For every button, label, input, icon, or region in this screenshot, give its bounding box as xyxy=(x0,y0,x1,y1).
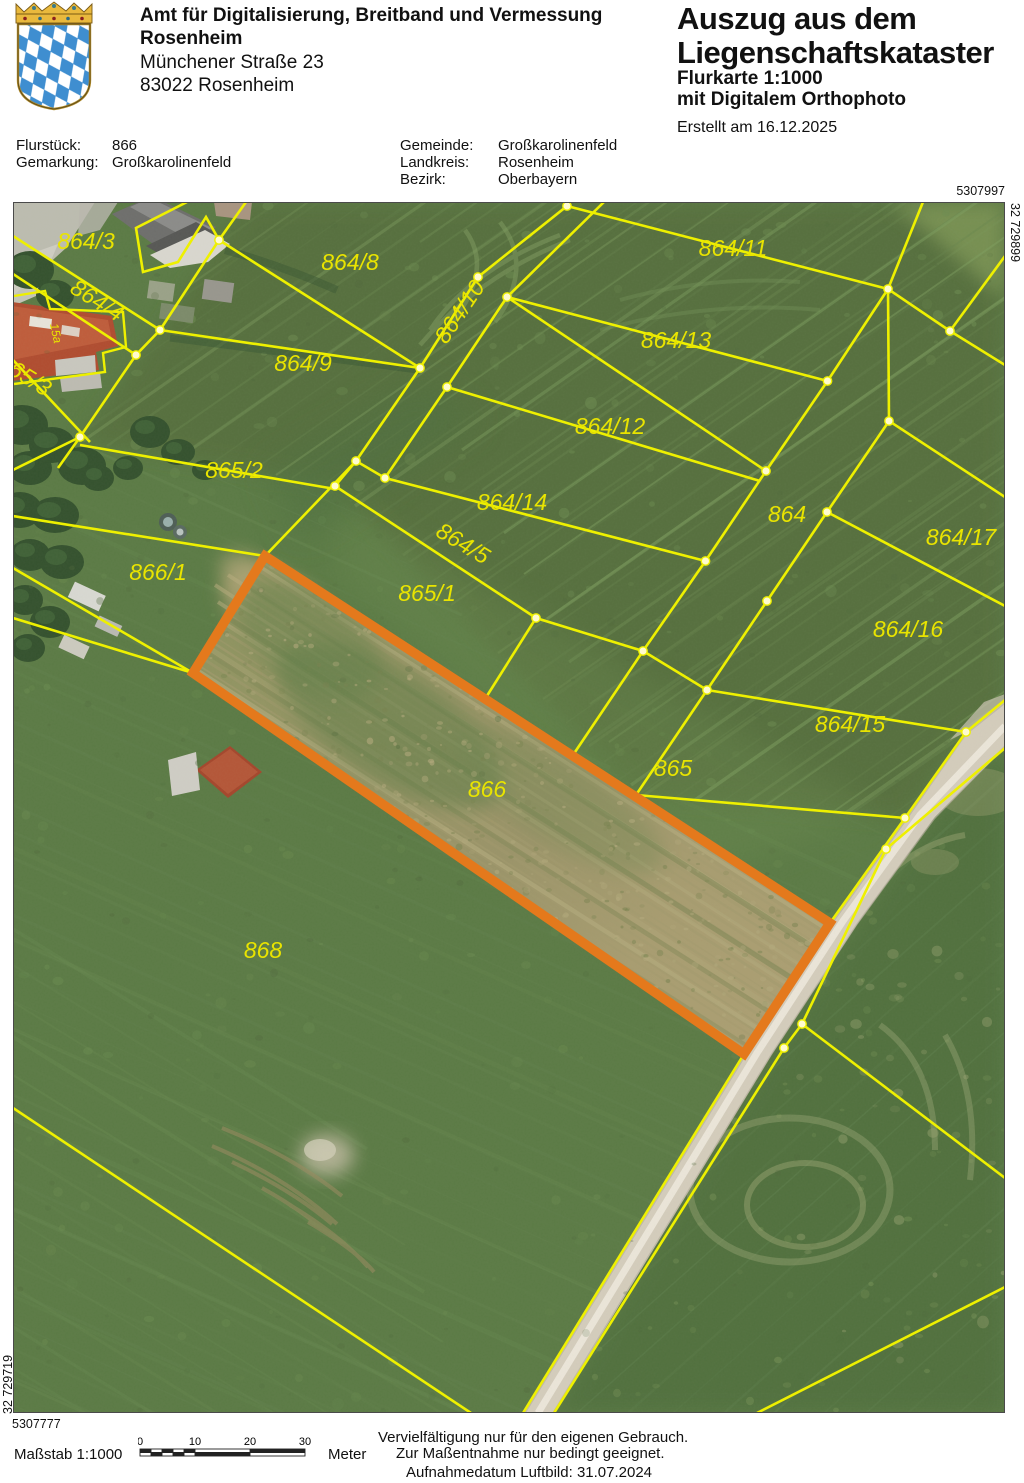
svg-text:864/9: 864/9 xyxy=(274,350,332,376)
svg-text:868: 868 xyxy=(244,937,283,963)
svg-text:864/3: 864/3 xyxy=(57,228,115,254)
svg-text:864/12: 864/12 xyxy=(575,413,646,439)
svg-text:864/13: 864/13 xyxy=(641,327,712,353)
svg-text:30: 30 xyxy=(299,1436,311,1448)
svg-text:864/11: 864/11 xyxy=(699,235,768,261)
svg-text:864/14: 864/14 xyxy=(477,489,547,515)
svg-text:864/8: 864/8 xyxy=(321,249,379,275)
svg-text:864/16: 864/16 xyxy=(873,616,944,642)
svg-text:864/15: 864/15 xyxy=(815,711,886,737)
svg-text:866: 866 xyxy=(468,776,507,802)
svg-text:864: 864 xyxy=(768,501,806,527)
svg-text:20: 20 xyxy=(244,1436,256,1448)
svg-text:10: 10 xyxy=(189,1436,201,1448)
svg-text:865/2: 865/2 xyxy=(205,457,263,483)
svg-text:864/17: 864/17 xyxy=(926,524,998,550)
svg-text:865/1: 865/1 xyxy=(398,580,456,606)
svg-text:866/1: 866/1 xyxy=(129,559,187,585)
svg-text:865: 865 xyxy=(654,755,693,781)
svg-text:0: 0 xyxy=(138,1436,143,1448)
